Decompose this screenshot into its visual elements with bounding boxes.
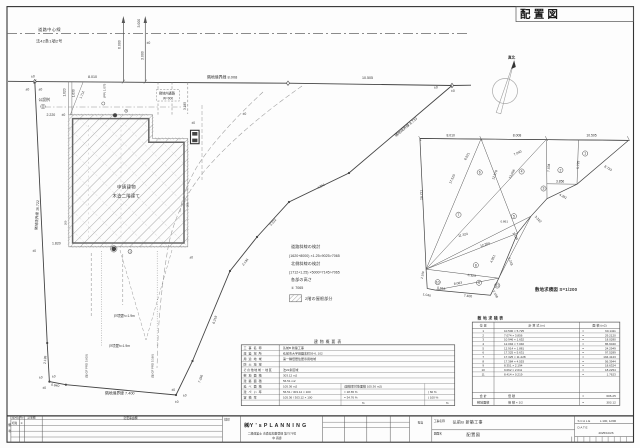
svg-text:各部の高さ: 各部の高さ [291,276,312,282]
svg-text:合 計: 合 計 [480,393,487,398]
svg-text:道路中心線: 道路中心線 [38,26,61,33]
svg-text:建 築 場 所: 建 築 場 所 [244,350,263,355]
svg-text:㈱Y ’ s P L A N N I N G: ㈱Y ’ s P L A N N I N G [244,421,306,429]
svg-text:防 火 地 域: 防 火 地 域 [244,361,263,366]
svg-text:±0: ±0 [183,394,187,398]
svg-text:昭和: 昭和 [12,421,18,425]
svg-text:(PP) 1.075: (PP) 1.075 [103,83,107,98]
svg-text:8.010: 8.010 [446,134,455,138]
svg-text:=: = [582,400,584,404]
svg-text:±0: ±0 [175,400,179,404]
svg-text:延 べ 面 積: 延 べ 面 積 [244,383,263,388]
svg-text:±0: ±0 [172,388,176,392]
svg-text:3.000: 3.000 [141,51,145,60]
svg-text:D A T E: D A T E [578,426,588,430]
svg-text:±0: ±0 [62,113,66,117]
svg-text:8.010: 8.010 [88,75,97,79]
svg-text:倍 積: 倍 積 [508,393,515,398]
svg-text:=: = [582,372,584,376]
svg-text:配置図: 配置図 [520,9,561,21]
svg-text:±0: ±0 [190,255,194,259]
svg-text:5.725: 5.725 [576,160,580,169]
svg-text:備: 備 [8,422,11,427]
svg-text:位 置: 位 置 [480,323,487,328]
svg-text:200: 200 [64,220,68,225]
svg-text:(仮 GF PRD 5.603): (仮 GF PRD 5.603) [84,354,88,378]
svg-text:2: 2 [559,168,561,172]
svg-text:7.634: 7.634 [547,163,551,172]
svg-text:建 物 概 要 表: 建 物 概 要 表 [314,339,342,344]
svg-text:法42条1項2号: 法42条1項2号 [36,38,63,44]
svg-text:±0: ±0 [451,89,455,93]
svg-text:戸境壁h=1.9m: 戸境壁h=1.9m [109,343,130,348]
svg-text:16.722: 16.722 [419,190,423,200]
svg-text:11: 11 [496,284,500,288]
svg-text:±0: ±0 [39,87,43,91]
svg-text:その他地域・地区: その他地域・地区 [244,367,273,372]
svg-text:No: No [20,416,24,420]
svg-text:(1620+8000) ×1.25=9025>7065: (1620+8000) ×1.25=9025>7065 [289,254,340,258]
svg-text:1.630: 1.630 [72,89,76,97]
svg-text:敷 地 面 積: 敷 地 面 積 [244,372,263,377]
svg-text:±0: ±0 [33,249,37,253]
svg-text:1.820: 1.820 [52,242,61,246]
svg-text:56.51 / 303.12 × 100: 56.51 / 303.12 × 100 [283,390,311,394]
svg-text:9: 9 [478,281,480,285]
svg-text:倍 積 × 1/2: 倍 積 × 1/2 [508,399,523,404]
svg-text:56.51 m2: 56.51 m2 [283,379,296,383]
svg-text:6.000: 6.000 [118,40,122,49]
svg-text:弘前B 新築工事: 弘前B 新築工事 [453,418,483,424]
svg-text:3.185: 3.185 [183,102,187,110]
svg-text:隣地境界線 8.008: 隣地境界線 8.008 [207,75,237,80]
svg-text:7.400: 7.400 [464,294,473,299]
svg-text:±0: ±0 [192,121,196,125]
svg-text:303.12 m2: 303.12 m2 [283,373,298,377]
svg-text:L:100, 1/200: L:100, 1/200 [600,419,616,423]
svg-text:±0: ±0 [243,112,247,116]
svg-text:計 算 式 (m): 計 算 式 (m) [528,323,545,328]
svg-text:S C A L E: S C A L E [578,419,591,423]
svg-text:記事欄: 記事欄 [28,416,36,420]
svg-text:真北: 真北 [508,55,516,60]
svg-text:5: 5 [513,214,515,218]
svg-text:±0: ±0 [31,74,35,78]
svg-text:法22条区域: 法22条区域 [283,367,298,372]
svg-text:8: 8 [475,263,477,267]
svg-text:6: 6 [479,171,481,175]
svg-text:±0: ±0 [43,386,47,390]
svg-text:1.7623: 1.7623 [607,372,617,376]
svg-text:第一種低層住居専用地域: 第一種低層住居専用地域 [283,356,316,361]
svg-text:606.25: 606.25 [606,394,616,398]
svg-text:隣地境界線 7.400: 隣地境界線 7.400 [105,390,135,395]
svg-text:303.12: 303.12 [606,400,616,404]
svg-text:105.36 m2: 105.36 m2 [283,384,298,388]
svg-text:2階の屋根部分: 2階の屋根部分 [305,295,333,301]
svg-text:工事名称: 工事名称 [434,419,445,423]
svg-text:申請建物: 申請建物 [117,184,136,191]
svg-text:(容積率対象面積 105.36 m2): (容積率対象面積 105.36 m2) [344,383,382,388]
svg-text:4: 4 [521,170,523,174]
svg-text:11: 11 [482,372,485,376]
svg-text:担当: 担当 [418,420,424,424]
svg-text:敷地内通路: 敷地内通路 [159,90,176,95]
svg-text:図面名: 図面名 [434,432,443,436]
svg-text:8.008: 8.008 [513,134,522,138]
svg-text:3: 3 [543,187,545,191]
svg-text:2.220: 2.220 [47,113,56,117]
svg-text:敷地求積図 S=1/200: 敷地求積図 S=1/200 [535,286,578,293]
svg-text:3.856: 3.856 [556,179,564,183]
svg-text:敷地面積: 敷地面積 [477,399,489,404]
svg-text:弘前市大字田園本町59-6, 102: 弘前市大字田園本町59-6, 102 [283,350,323,355]
svg-text:容 積 率: 容 積 率 [244,395,258,400]
svg-text:= 18.65 %: = 18.65 % [344,390,358,394]
svg-text:年月日: 年月日 [12,416,20,420]
svg-text:= 34.76 %: = 34.76 % [344,396,358,400]
svg-text:工 事 名 称: 工 事 名 称 [244,345,263,350]
svg-text:(仮 GF PRD 5.166): (仮 GF PRD 5.166) [151,354,155,378]
svg-text:1: 1 [584,152,586,156]
svg-text:10: 10 [436,280,440,284]
svg-text:建 築 面 積: 建 築 面 積 [244,378,263,383]
svg-text:建 ぺ い 率: 建 ぺ い 率 [244,389,263,394]
svg-text:2025/10/26: 2025/10/26 [599,431,614,435]
svg-text:変更事由欄: 変更事由欄 [123,416,137,420]
svg-text:( 100 %: ( 100 % [428,396,439,400]
svg-text:10.505: 10.505 [586,134,596,138]
svg-text:敷 地 求 積 表: 敷 地 求 積 表 [477,315,504,320]
svg-text:検印: 検印 [224,418,230,422]
svg-text:±0: ±0 [26,87,30,91]
svg-text:W=900: W=900 [163,96,173,100]
svg-text:%: % [446,401,449,405]
svg-text:7: 7 [458,213,460,217]
svg-text:面 積 (m2): 面 積 (m2) [592,323,606,328]
svg-text:2.199: 2.199 [43,355,48,364]
svg-text:3.000: 3.000 [137,19,141,28]
svg-text:±0: ±0 [39,375,43,379]
svg-text:±0: ±0 [147,41,151,45]
svg-text:公設桝: 公設桝 [39,97,51,102]
svg-text:200: 200 [185,202,189,207]
svg-text:木造二階建て: 木造二階建て [113,192,141,199]
svg-text:考: 考 [8,428,11,433]
svg-text:弘前B 新築工事: 弘前B 新築工事 [283,345,304,350]
svg-text:( 60 %: ( 60 % [428,390,437,394]
svg-text:±0: ±0 [434,86,438,90]
svg-text:① 7065: ① 7065 [291,286,303,290]
svg-text:中 昌彦: 中 昌彦 [272,435,282,440]
svg-text:(1712+1.25) ×5000=7145>7065: (1712+1.25) ×5000=7145>7065 [289,271,340,275]
svg-text:105.36 / 303.12 × 100: 105.36 / 303.12 × 100 [283,396,313,400]
svg-text:戸境壁h=1.9m: 戸境壁h=1.9m [114,313,135,318]
svg-text:%: % [362,401,365,405]
svg-text:北側斜線の検討: 北側斜線の検討 [291,260,320,266]
svg-text:8.414 × 0.219: 8.414 × 0.219 [504,372,523,376]
svg-text:10.505: 10.505 [362,76,373,80]
svg-text:=: = [582,394,584,398]
svg-text:±0: ±0 [52,375,56,379]
svg-text:0.861: 0.861 [501,219,509,223]
svg-text:用 途 地 域: 用 途 地 域 [244,356,263,361]
svg-text:道路斜線の検討: 道路斜線の検討 [291,243,320,249]
svg-text:1.620: 1.620 [62,88,66,96]
